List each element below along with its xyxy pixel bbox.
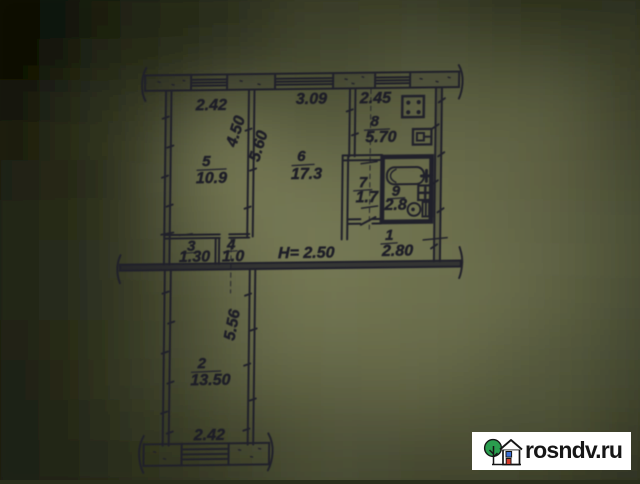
- svg-text:2.80: 2.80: [381, 243, 413, 260]
- svg-text:3.09: 3.09: [296, 91, 327, 108]
- svg-text:13.50: 13.50: [190, 372, 230, 389]
- svg-text:5.60: 5.60: [246, 129, 271, 164]
- svg-text:2.42: 2.42: [195, 97, 227, 114]
- svg-text:2: 2: [197, 355, 207, 372]
- svg-text:1.7: 1.7: [356, 189, 380, 206]
- svg-text:1.30: 1.30: [179, 249, 210, 266]
- svg-text:10.9: 10.9: [196, 170, 227, 187]
- svg-text:4.50: 4.50: [223, 114, 249, 150]
- svg-text:2.42: 2.42: [193, 427, 225, 444]
- svg-text:2.45: 2.45: [359, 90, 392, 107]
- svg-text:6: 6: [297, 148, 306, 165]
- svg-text:5.56: 5.56: [221, 308, 244, 342]
- svg-text:17.3: 17.3: [291, 166, 322, 183]
- svg-text:2.8: 2.8: [383, 197, 407, 214]
- svg-text:1: 1: [385, 227, 394, 244]
- svg-text:H= 2.50: H= 2.50: [278, 245, 335, 263]
- svg-text:1.0: 1.0: [222, 248, 245, 265]
- svg-text:5: 5: [202, 153, 211, 170]
- svg-text:8: 8: [370, 113, 379, 130]
- svg-text:5.70: 5.70: [365, 129, 396, 146]
